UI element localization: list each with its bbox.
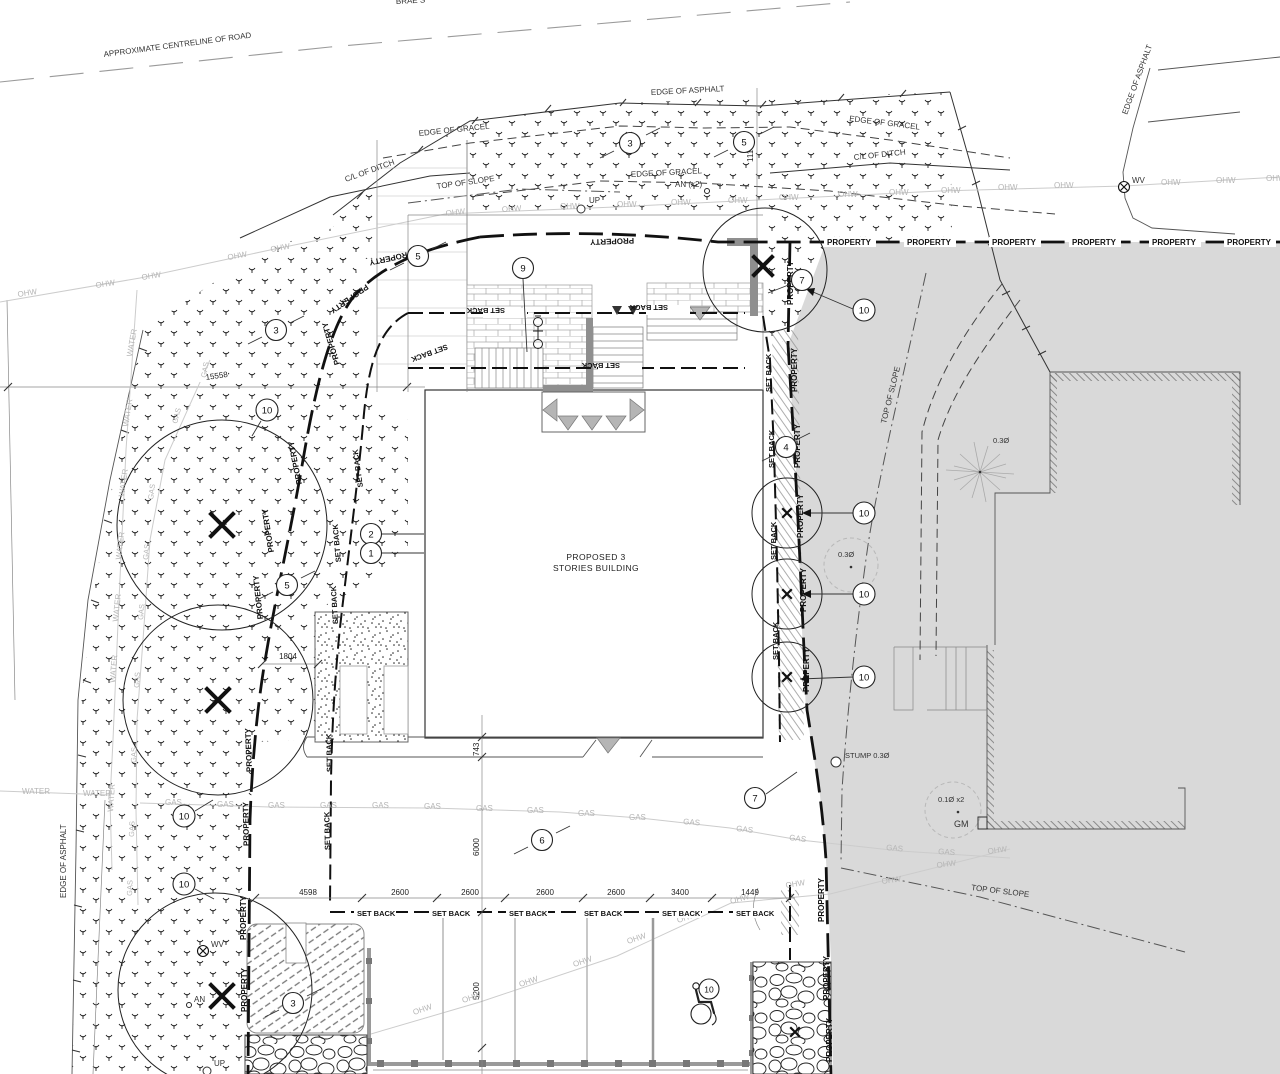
property-label: PROPERTY <box>802 647 811 692</box>
edge-of-asphalt-label: EDGE OF ASPHALT <box>59 824 68 898</box>
keynote-1: 1 <box>361 543 382 564</box>
edge-of-asphalt-label: EDGE OF ASPHALT <box>651 84 725 97</box>
keynote-number: 3 <box>290 999 295 1010</box>
street-name-label: BRAE S <box>396 0 426 6</box>
gas-label: GAS <box>789 833 807 844</box>
water-label: WATER <box>83 789 111 798</box>
ohw-label: OHW <box>785 878 806 890</box>
dim-3400: 3400 <box>671 888 689 897</box>
gas-label: GAS <box>527 806 544 815</box>
ohw-label: OHW <box>779 193 799 202</box>
keynote-number: 10 <box>859 509 870 520</box>
setback-label: SET BACK <box>357 909 396 918</box>
property-label: PROPERTY <box>992 238 1037 247</box>
gm-label: GM <box>954 819 969 829</box>
dim-4598: 4598 <box>299 888 317 897</box>
keynote-10: 10 <box>256 399 278 421</box>
ohw-label: OHW <box>889 188 909 197</box>
keynote-3: 3 <box>266 320 287 341</box>
gas-label: GAS <box>320 801 337 810</box>
entry-vestibule <box>542 392 645 432</box>
dim-2600: 2600 <box>607 888 625 897</box>
cobble-bed <box>245 1035 367 1074</box>
property-label: PROPERTY <box>790 347 799 392</box>
property-label: PROPERTY <box>822 955 831 1000</box>
tree-dia-label: 0.3Ø <box>993 436 1009 445</box>
ohw-label: OHW <box>17 287 38 299</box>
gas-label: GAS <box>424 802 441 811</box>
keynote-6: 6 <box>532 830 553 851</box>
property-label: PROPERTY <box>1152 238 1197 247</box>
keynote-number: 7 <box>752 794 757 805</box>
keynote-number: 3 <box>627 139 632 150</box>
setback-label: SET BACK <box>769 521 778 560</box>
setback-label: SET BACK <box>581 361 620 370</box>
gas-label: GAS <box>125 880 135 896</box>
ohw-label: OHW <box>1161 178 1181 187</box>
keynote-number: 5 <box>415 252 420 263</box>
keynote-4: 4 <box>776 437 797 458</box>
gas-label: GAS <box>217 800 234 809</box>
property-label: PROPERTY <box>796 493 805 538</box>
keynote-number: 2 <box>368 530 373 541</box>
property-label: PROPERTY <box>827 238 872 247</box>
keynote-number: 3 <box>273 326 278 337</box>
keynote-number: 10 <box>179 812 190 823</box>
stump-label: STUMP 0.3Ø <box>845 751 890 760</box>
wv-label: WV <box>1132 176 1146 185</box>
ohw-label: OHW <box>998 183 1018 192</box>
ohw-label: OHW <box>95 278 116 290</box>
up-label: UP <box>214 1059 225 1068</box>
keynote-5: 5 <box>734 132 755 153</box>
wall <box>586 318 593 392</box>
setback-label: SET BACK <box>662 909 701 918</box>
gas-label: GAS <box>938 847 955 857</box>
cobble-bed <box>753 962 831 1074</box>
property-label: PROPERTY <box>241 801 251 846</box>
property-label: PROPERTY <box>907 238 952 247</box>
ohw-label: OHW <box>227 250 248 262</box>
ohw-label: OHW <box>1216 176 1236 185</box>
keynote-number: 10 <box>704 985 714 995</box>
water-label: WATER <box>125 328 139 357</box>
property-label: PROPERTY <box>825 1017 834 1062</box>
keynote-number: 10 <box>179 880 190 891</box>
dim-743: 743 <box>472 742 481 756</box>
setback-label: SET BACK <box>584 909 623 918</box>
keynote-number: 10 <box>859 673 870 684</box>
dim-2600: 2600 <box>536 888 554 897</box>
tree-dia-label: 0.1Ø x2 <box>938 795 964 804</box>
keynote-7: 7 <box>792 270 813 291</box>
tree-dia-label: 0.3Ø <box>838 550 854 559</box>
property-label: PROPERTY <box>240 967 249 1012</box>
an-x2-label: AN (x2) <box>675 180 702 189</box>
ohw-label: OHW <box>572 954 594 969</box>
building-label-line1: PROPOSED 3 <box>566 552 625 562</box>
setback-label: SET BACK <box>764 353 773 392</box>
edge-of-asphalt-label: EDGE OF ASPHALT <box>1120 43 1154 115</box>
keynote-number: 6 <box>539 836 544 847</box>
gas-label: GAS <box>127 821 137 837</box>
keynote-3: 3 <box>283 993 304 1014</box>
ohw-label: OHW <box>141 270 162 282</box>
an-label: AN <box>194 995 205 1004</box>
keynote-number: 1 <box>368 549 373 560</box>
road-centerline-label: APPROXIMATE CENTRELINE OF ROAD <box>103 31 252 59</box>
neighbor-lot-area <box>788 242 1280 1074</box>
up-label: UP <box>589 196 600 205</box>
keynote-7: 7 <box>745 788 766 809</box>
setback-label: SET BACK <box>432 909 471 918</box>
stump-symbol <box>831 757 841 767</box>
dim-2600: 2600 <box>461 888 479 897</box>
ohw-label: OHW <box>728 196 748 205</box>
setback-label: SET BACK <box>736 909 775 918</box>
water-label: WATER <box>22 787 50 796</box>
water-valve-icon <box>1119 182 1130 193</box>
gas-label: GAS <box>136 604 146 621</box>
dim-1804: 1804 <box>279 652 297 661</box>
property-label: PROPERTY <box>799 567 808 612</box>
ohw-label: OHW <box>412 1002 434 1017</box>
ohw-label: OHW <box>729 892 751 906</box>
curb-arrow <box>597 738 620 753</box>
setback-label: SET BACK <box>324 733 334 772</box>
keynote-10: 10 <box>699 979 719 999</box>
dim-6000: 6000 <box>472 838 481 856</box>
dim-2600: 2600 <box>391 888 409 897</box>
gas-label: GAS <box>268 801 285 810</box>
wv-label: WV <box>211 940 225 949</box>
ohw-label: OHW <box>617 200 637 209</box>
keynote-5: 5 <box>408 246 429 267</box>
ohw-label: OHW <box>671 198 691 207</box>
site-plan-drawing: PROPOSED 3 STORIES BUILDING 15558 11179 … <box>0 0 1280 1074</box>
gas-label: GAS <box>129 747 139 763</box>
gas-label: GAS <box>736 824 754 835</box>
keynote-number: 10 <box>859 590 870 601</box>
setback-label: SET BACK <box>771 621 780 660</box>
gas-label: GAS <box>141 544 152 561</box>
setback-label: SET BACK <box>509 909 548 918</box>
ohw-label: OHW <box>1266 174 1280 183</box>
water-valve-icon <box>198 946 209 957</box>
keynote-number: 9 <box>520 264 525 275</box>
gas-label: GAS <box>372 801 389 810</box>
keynote-9: 9 <box>513 258 534 279</box>
ohw-label: OHW <box>518 974 540 989</box>
setback-label: SET BACK <box>767 429 776 468</box>
ohw-label: OHW <box>941 186 961 195</box>
keynote-number: 7 <box>799 276 804 287</box>
keynote-3: 3 <box>620 133 641 154</box>
keynote-10: 10 <box>853 583 875 605</box>
keynote-number: 5 <box>284 581 289 592</box>
keynote-number: 5 <box>741 138 746 149</box>
keynote-number: 4 <box>783 443 788 454</box>
gas-label: GAS <box>476 804 493 813</box>
gas-label: GAS <box>132 672 142 688</box>
keynote-2: 2 <box>361 524 382 545</box>
gas-label: GAS <box>629 813 646 822</box>
property-label: PROPERTY <box>243 727 254 772</box>
wall <box>543 385 593 392</box>
property-label: PROPERTY <box>239 895 248 940</box>
gas-label: GAS <box>578 809 595 818</box>
ohw-label: OHW <box>1054 181 1074 190</box>
setback-label: SET BACK <box>629 303 668 312</box>
gas-label: GAS <box>886 843 904 853</box>
building-label-line2: STORIES BUILDING <box>553 563 639 573</box>
keynote-10: 10 <box>853 666 875 688</box>
keynote-10: 10 <box>173 873 195 895</box>
keynote-number: 10 <box>859 306 870 317</box>
property-label: PROPERTY <box>1072 238 1117 247</box>
ohw-label: OHW <box>838 190 858 199</box>
keynote-10: 10 <box>173 805 195 827</box>
keynote-number: 10 <box>262 406 273 417</box>
stall-line <box>443 918 587 1060</box>
keynote-10: 10 <box>853 502 875 524</box>
setback-label: SET BACK <box>466 306 505 315</box>
setback-label: SET BACK <box>322 811 332 850</box>
property-label: PROPERTY <box>817 877 826 922</box>
property-label: PROPERTY <box>1227 238 1272 247</box>
gas-label: GAS <box>683 817 701 827</box>
keynote-10: 10 <box>853 299 875 321</box>
keynote-5: 5 <box>277 575 298 596</box>
property-label: PROPERTY <box>589 236 634 247</box>
ohw-label: OHW <box>502 204 523 214</box>
